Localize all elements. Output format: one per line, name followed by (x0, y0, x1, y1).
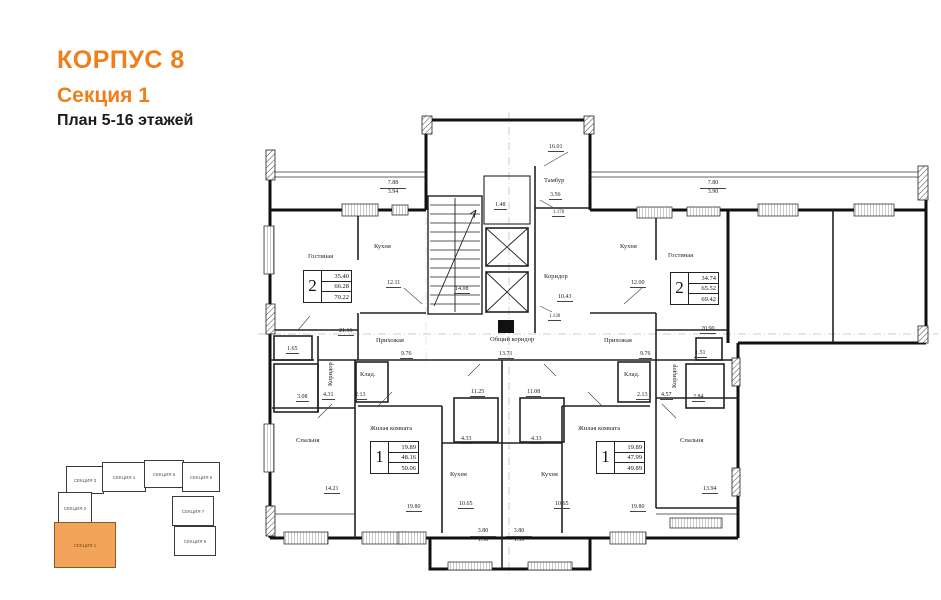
room-label-kitchen1-right: Кухня (541, 472, 558, 479)
area-living-right: 20.90 (700, 326, 716, 334)
stamp-rooms: 2 (304, 271, 322, 302)
area-bath1-right: 4.33 (530, 436, 543, 444)
minimap-section-label: СЕКЦИЯ 3 (74, 478, 96, 483)
dim-top-right-b: 3.90 (708, 189, 719, 195)
dim-bottom-left: 19.80 (406, 504, 422, 512)
minimap-section-7[interactable]: СЕКЦИЯ 7 (172, 496, 214, 526)
dim-top-left-a: 7.88 (380, 180, 406, 189)
stamp-total-area: 50.06 (389, 463, 418, 473)
area-elevator-hall: 1.48 (494, 202, 507, 210)
stamp-total-area: 69.42 (689, 294, 718, 304)
dim-door-a: 1.170 (552, 210, 565, 217)
room-label-living-right: Гостиная (668, 253, 693, 260)
stamp-total-area: 70.22 (322, 292, 351, 302)
stamp-rooms: 2 (671, 273, 689, 304)
stamp-area: 47.99 (615, 453, 644, 464)
room-label-hall-left: Прихожая (376, 338, 404, 345)
apartment-stamp-1room-right: 1 19.89 47.99 49.89 (596, 441, 645, 474)
area-bath1-left: 4.33 (460, 436, 473, 444)
minimap-section-label: СЕКЦИЯ 2 (64, 506, 86, 511)
minimap-section-label: СЕКЦИЯ 7 (182, 509, 204, 514)
room-label-corridor-right: Коридор (672, 364, 679, 388)
dim-bottom-right: 19.80 (630, 504, 646, 512)
stamp-living-area: 19.89 (389, 442, 418, 453)
stamp-rooms: 1 (597, 442, 615, 473)
room-label-corridor-left: Коридор (328, 362, 335, 386)
room-label-room1-left: Жилая комната (370, 426, 412, 433)
minimap-section-1-highlighted[interactable]: СЕКЦИЯ 1 (54, 522, 116, 568)
dim-kitchen1-right: 10.65 (554, 501, 570, 509)
dim-top-left-b: 3.94 (388, 189, 399, 195)
minimap-section-5[interactable]: СЕКЦИЯ 5 (144, 460, 184, 488)
area-stairs: 14.08 (454, 286, 470, 294)
plan-title: План 5-16 этажей (57, 112, 193, 130)
dim-top-right: 7.80 3.90 (700, 180, 726, 196)
area-bedroom-left: 14.21 (324, 486, 340, 494)
area-corridor-right: 4.57 (660, 392, 673, 400)
room-label-corridor-center: Коридор (544, 274, 568, 281)
room-label-closet-left: Клад. (360, 372, 375, 379)
minimap-section-label: СЕКЦИЯ 4 (113, 475, 135, 480)
dim-top-right-a: 7.80 (700, 180, 726, 189)
minimap-section-2[interactable]: СЕКЦИЯ 2 (58, 492, 92, 524)
minimap-section-4[interactable]: СЕКЦИЯ 4 (102, 462, 146, 492)
area-hall-right: 9.76 (639, 351, 652, 359)
area-living-left: 21.16 (338, 328, 354, 336)
floor-plan-linework (258, 108, 938, 578)
minimap-section-3[interactable]: СЕКЦИЯ 3 (66, 466, 104, 494)
room-label-kitchen-left: Кухня (374, 244, 391, 251)
area-bath-right: 2.84 (692, 394, 705, 402)
room-label-closet-right: Клад. (624, 372, 639, 379)
minimap-section-label: СЕКЦИЯ 8 (184, 539, 206, 544)
apartment-stamp-1room-left: 1 19.89 48.16 50.06 (370, 441, 419, 474)
area-hall1-right: 11.08 (526, 389, 541, 397)
area-bath-left: 3.08 (296, 394, 309, 402)
area-corridor-left: 4.31 (322, 392, 335, 400)
dim-porch-left-a: 3.80 (470, 528, 496, 537)
stamp-rooms: 1 (371, 442, 389, 473)
dim-porch-left-b: 1.90 (478, 537, 489, 543)
building-title: КОРПУС 8 (57, 46, 185, 75)
area-wc-right: 1.51 (694, 350, 707, 358)
area-hall-left: 9.76 (400, 351, 413, 359)
apartment-stamp-2room-left: 2 35.40 66.28 70.22 (303, 270, 352, 303)
apartment-stamp-2room-right: 2 34.74 65.52 69.42 (670, 272, 719, 305)
minimap-section-label: СЕКЦИЯ 6 (190, 475, 212, 480)
minimap-section-label: СЕКЦИЯ 1 (74, 543, 96, 548)
room-label-bedroom-right: Спальня (680, 438, 703, 445)
stamp-area: 66.28 (322, 282, 351, 293)
stamp-area: 48.16 (389, 453, 418, 464)
dim-common-corridor: 13.71 (498, 351, 514, 359)
dim-porch-right-b: 1.90 (514, 537, 525, 543)
minimap-section-8[interactable]: СЕКЦИЯ 8 (174, 526, 216, 556)
room-label-common-corridor: Общий коридор (490, 337, 534, 344)
room-label-kitchen1-left: Кухня (450, 472, 467, 479)
area-bedroom-right: 13.94 (702, 486, 718, 494)
minimap-section-label: СЕКЦИЯ 5 (153, 472, 175, 477)
area-closet-right: 2.13 (636, 392, 649, 400)
room-label-kitchen-right: Кухня (620, 244, 637, 251)
building-minimap: СЕКЦИЯ 3 СЕКЦИЯ 4 СЕКЦИЯ 5 СЕКЦИЯ 6 СЕКЦ… (40, 452, 245, 577)
room-label-bedroom-left: Спальня (296, 438, 319, 445)
section-title: Секция 1 (57, 84, 150, 108)
dim-top-left: 7.88 3.94 (380, 180, 406, 196)
room-label-hall-right: Прихожая (604, 338, 632, 345)
area-tambur: 3.56 (549, 192, 562, 200)
area-wc-left: 1.65 (286, 346, 299, 354)
stamp-living-area: 19.89 (615, 442, 644, 453)
area-hall1-left: 11.25 (470, 389, 485, 397)
stamp-total-area: 49.89 (615, 463, 644, 473)
dim-porch-right-a: 3.80 (506, 528, 532, 537)
area-closet-left: 2.13 (354, 392, 367, 400)
dim-porch-left: 3.80 1.90 (470, 528, 496, 544)
room-label-room1-right: Жилая комната (578, 426, 620, 433)
dim-door-b: 1.130 (548, 314, 561, 321)
dim-kitchen1-left: 10.65 (458, 501, 474, 509)
area-corridor-center: 10.43 (557, 294, 573, 302)
stamp-area: 65.52 (689, 284, 718, 295)
dim-porch-right: 3.80 1.90 (506, 528, 532, 544)
room-label-living-left: Гостиная (308, 254, 333, 261)
dim-top-center: 16.01 (548, 144, 564, 152)
stamp-living-area: 34.74 (689, 273, 718, 284)
area-kitchen-right: 12.00 (630, 280, 646, 288)
minimap-section-6[interactable]: СЕКЦИЯ 6 (182, 462, 220, 492)
area-kitchen-left: 12.11 (386, 280, 401, 288)
stamp-living-area: 35.40 (322, 271, 351, 282)
room-label-tambur: Тамбур (544, 178, 564, 185)
floor-plan: Гостиная 21.16 Кухня 12.11 14.08 1.48 Та… (258, 108, 938, 578)
